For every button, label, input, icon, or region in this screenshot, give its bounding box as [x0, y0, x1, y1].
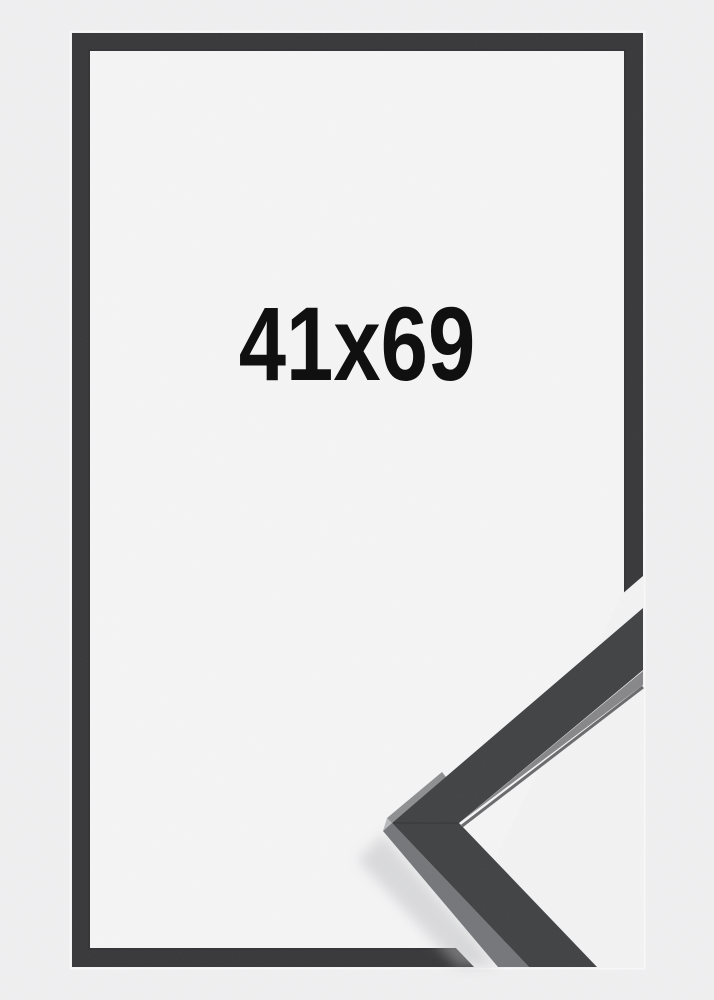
product-image: 41x69	[0, 0, 714, 1000]
frame-graphic	[0, 0, 714, 1000]
photo-grain-overlay	[0, 0, 714, 1000]
frame-size-label: 41x69	[68, 292, 646, 397]
